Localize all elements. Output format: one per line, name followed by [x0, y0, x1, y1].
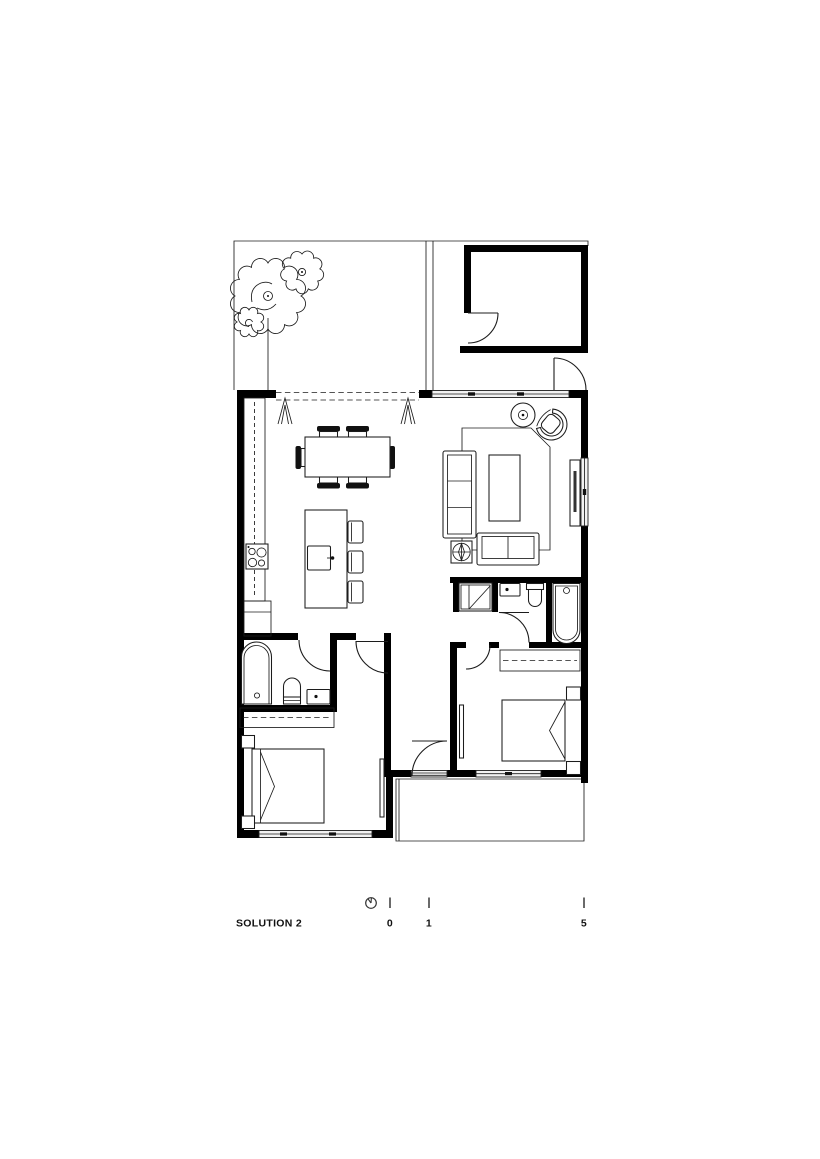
scale-tick-0: 0: [387, 918, 393, 930]
window-living-top: [432, 391, 569, 398]
tree-large-squiggle-1: [251, 282, 272, 302]
floor-plan-sheet: 0 1 5 SOLUTION 2: [0, 0, 820, 1159]
wall: [581, 245, 588, 353]
kitchen: [244, 398, 363, 636]
bathroom: [459, 583, 580, 644]
living-area: [443, 403, 580, 565]
wall: [529, 642, 588, 648]
window-bedroom1: [259, 831, 372, 838]
trees: [230, 251, 323, 337]
ensuite: [242, 642, 331, 704]
nightstand: [567, 687, 581, 700]
wall: [384, 633, 391, 777]
north-indicator-icon: [366, 898, 377, 909]
title-block: 0 1 5 SOLUTION 2: [236, 898, 587, 930]
entry-threshold: [411, 771, 447, 778]
dining-area: [296, 426, 396, 489]
tree-small-dot: [301, 271, 303, 273]
nightstand: [242, 736, 255, 749]
shrub-icon: [234, 307, 263, 336]
bedroom-2: [460, 650, 581, 775]
wall: [492, 583, 498, 612]
round-side-table: [511, 403, 535, 427]
window-bedroom2: [476, 771, 541, 778]
wall: [330, 633, 356, 640]
wall: [237, 705, 337, 712]
island-stools: [348, 521, 363, 603]
bed-bedroom2: [502, 700, 565, 761]
scale-tick-5: 5: [581, 918, 587, 930]
wall: [237, 633, 298, 640]
ensuite-toilet-icon: [284, 678, 301, 704]
tv-icon: [574, 471, 577, 512]
plant-side-table: [451, 541, 472, 563]
tv-console: [570, 460, 580, 526]
side-entry-door-swing: [554, 358, 586, 390]
wall: [390, 770, 411, 777]
cooktop-icon: [246, 544, 268, 569]
dining-table: [305, 437, 390, 477]
wall: [569, 390, 588, 398]
ensuite-sink-icon: [307, 690, 330, 705]
fold-mark-right: [401, 398, 415, 424]
island-sink-icon: [308, 546, 335, 570]
bedroom1-door-swing: [356, 641, 388, 673]
wall: [546, 583, 552, 648]
wall: [460, 346, 588, 353]
wall: [237, 390, 276, 398]
wall: [419, 390, 432, 398]
bedroom2-door-swing: [466, 645, 490, 669]
courtyard-boundary: [234, 241, 588, 390]
bathtub-icon: [553, 584, 580, 644]
wall: [330, 640, 337, 712]
bed-bedroom1: [252, 749, 324, 823]
kitchen-tall-cabinet: [244, 601, 271, 636]
wall: [464, 245, 471, 313]
wall: [581, 646, 588, 783]
drawing-title: SOLUTION 2: [236, 918, 302, 930]
wardrobe-bedroom2: [500, 650, 580, 671]
toilet-icon: [527, 584, 544, 607]
coffee-table: [489, 455, 520, 521]
window-living-right: [581, 458, 588, 526]
bathroom-sink-icon: [500, 584, 520, 597]
floor-plan: 0 1 5 SOLUTION 2: [0, 0, 820, 1159]
wall: [453, 583, 459, 612]
scale-bar: 0 1 5: [387, 898, 587, 930]
shower-icon: [459, 583, 492, 611]
ensuite-bathtub-icon: [242, 642, 272, 704]
wall: [237, 830, 259, 838]
nightstand: [567, 762, 581, 775]
ensuite-door-swing: [299, 640, 330, 671]
fold-mark-left: [278, 398, 292, 424]
wall: [386, 770, 393, 838]
bathroom-door-swing: [499, 613, 529, 643]
scale-tick-1: 1: [426, 918, 432, 930]
tree-large-dot: [267, 295, 269, 297]
garage-door-swing: [468, 313, 498, 343]
wall: [581, 398, 588, 460]
wall: [450, 577, 588, 583]
sofa-3seat: [443, 451, 476, 538]
stacking-door: [276, 393, 419, 425]
nightstand: [242, 816, 255, 829]
mirror-bedroom2: [460, 705, 464, 758]
tree-large-squiggle-2: [257, 304, 276, 310]
porch-outline: [396, 779, 584, 841]
armchair: [532, 405, 573, 447]
mirror-bedroom1: [380, 759, 384, 817]
wall: [450, 642, 457, 777]
wall: [237, 398, 244, 838]
loveseat: [477, 533, 539, 565]
wall: [581, 526, 588, 646]
wall: [464, 245, 588, 252]
bedroom-1: [240, 708, 384, 829]
